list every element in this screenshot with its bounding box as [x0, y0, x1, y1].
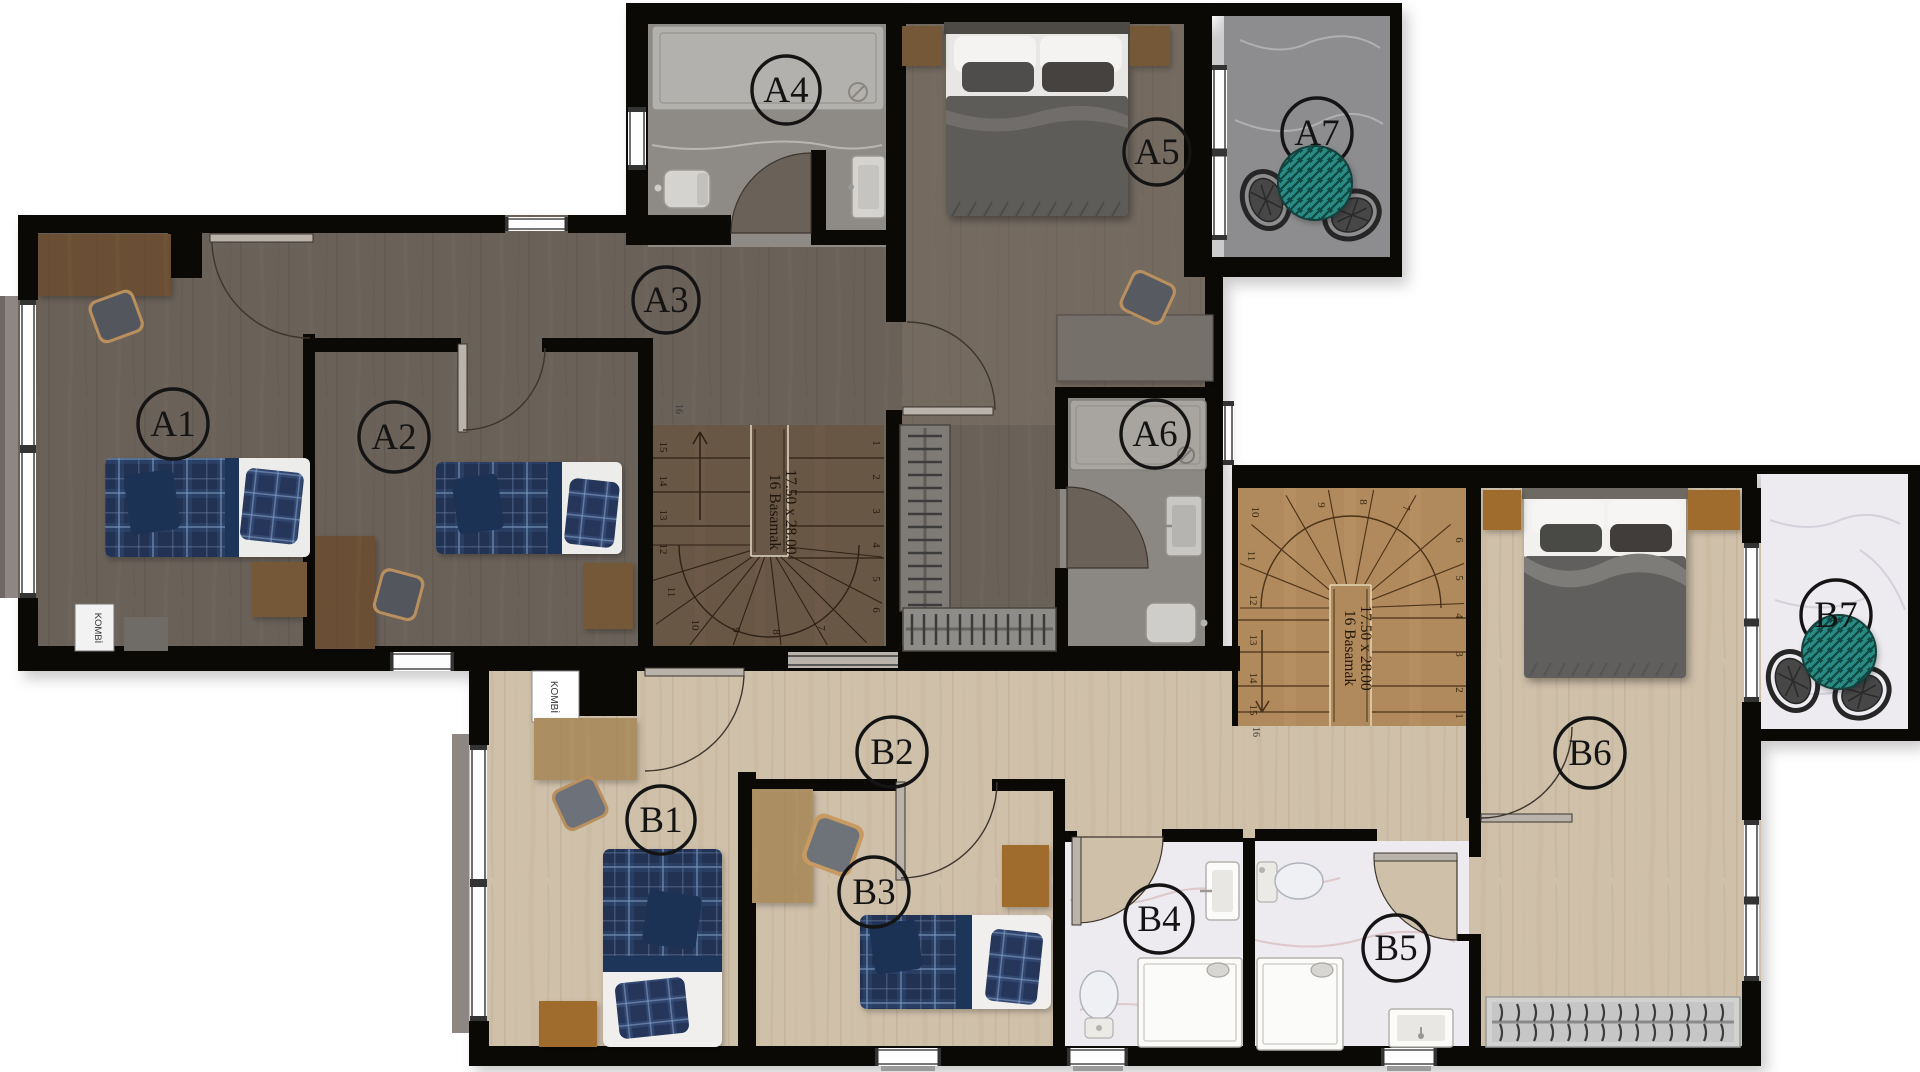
svg-text:B7: B7 [1814, 595, 1857, 636]
svg-text:17.50 x 28.00: 17.50 x 28.00 [782, 469, 799, 555]
svg-text:5: 5 [1453, 575, 1465, 581]
svg-text:14: 14 [657, 476, 669, 488]
svg-text:4: 4 [1453, 613, 1465, 619]
svg-text:6: 6 [1453, 537, 1465, 543]
svg-text:1: 1 [1453, 713, 1465, 719]
svg-text:A3: A3 [643, 280, 688, 321]
svg-text:B3: B3 [852, 872, 895, 913]
svg-text:5: 5 [870, 576, 882, 582]
svg-text:9: 9 [730, 627, 742, 633]
svg-text:16: 16 [673, 404, 684, 414]
svg-text:12: 12 [657, 544, 669, 555]
svg-text:B4: B4 [1137, 899, 1180, 940]
svg-text:A4: A4 [763, 70, 808, 111]
svg-text:7: 7 [1400, 505, 1412, 511]
svg-text:3: 3 [870, 508, 882, 514]
svg-text:17.50 x 28.00: 17.50 x 28.00 [1357, 605, 1374, 691]
svg-text:6: 6 [870, 607, 882, 613]
svg-text:2: 2 [1453, 687, 1465, 693]
svg-text:11: 11 [665, 587, 677, 598]
svg-text:14: 14 [1247, 673, 1259, 685]
svg-text:2: 2 [870, 474, 882, 480]
svg-text:8: 8 [1357, 499, 1369, 505]
svg-text:8: 8 [770, 629, 782, 635]
svg-text:4: 4 [870, 542, 882, 548]
svg-text:10: 10 [1249, 507, 1261, 519]
svg-text:16 Basamak: 16 Basamak [1341, 610, 1358, 686]
svg-text:A2: A2 [371, 417, 416, 458]
svg-text:16 Basamak: 16 Basamak [766, 474, 783, 550]
svg-text:15: 15 [1247, 705, 1259, 717]
svg-text:A1: A1 [150, 404, 195, 445]
svg-text:11: 11 [1245, 551, 1257, 562]
svg-text:13: 13 [657, 510, 669, 522]
svg-text:B2: B2 [870, 732, 913, 773]
svg-text:9: 9 [1315, 502, 1327, 508]
svg-text:16: 16 [1250, 727, 1261, 737]
svg-text:13: 13 [1247, 635, 1259, 647]
svg-text:B5: B5 [1374, 928, 1417, 969]
svg-text:12: 12 [1247, 595, 1259, 606]
svg-text:15: 15 [657, 442, 669, 454]
svg-text:3: 3 [1453, 651, 1465, 657]
svg-text:A6: A6 [1132, 414, 1177, 455]
svg-text:A5: A5 [1134, 132, 1179, 173]
svg-text:A7: A7 [1294, 113, 1339, 154]
svg-text:KOMBİ: KOMBİ [548, 681, 561, 713]
svg-text:B6: B6 [1568, 733, 1611, 774]
svg-text:7: 7 [815, 625, 827, 631]
svg-text:1: 1 [870, 440, 882, 446]
svg-text:B1: B1 [639, 800, 682, 841]
svg-text:10: 10 [689, 620, 701, 632]
svg-text:KOMBİ: KOMBİ [92, 613, 103, 644]
